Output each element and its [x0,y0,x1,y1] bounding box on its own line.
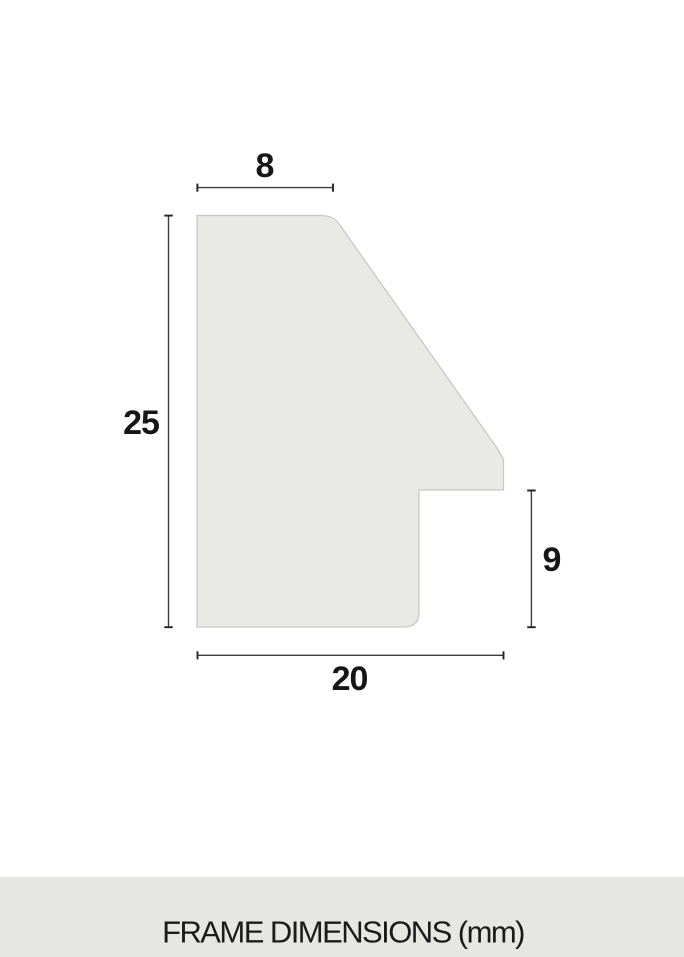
svg-text:FRAME DIMENSIONS (mm): FRAME DIMENSIONS (mm) [162,915,524,950]
